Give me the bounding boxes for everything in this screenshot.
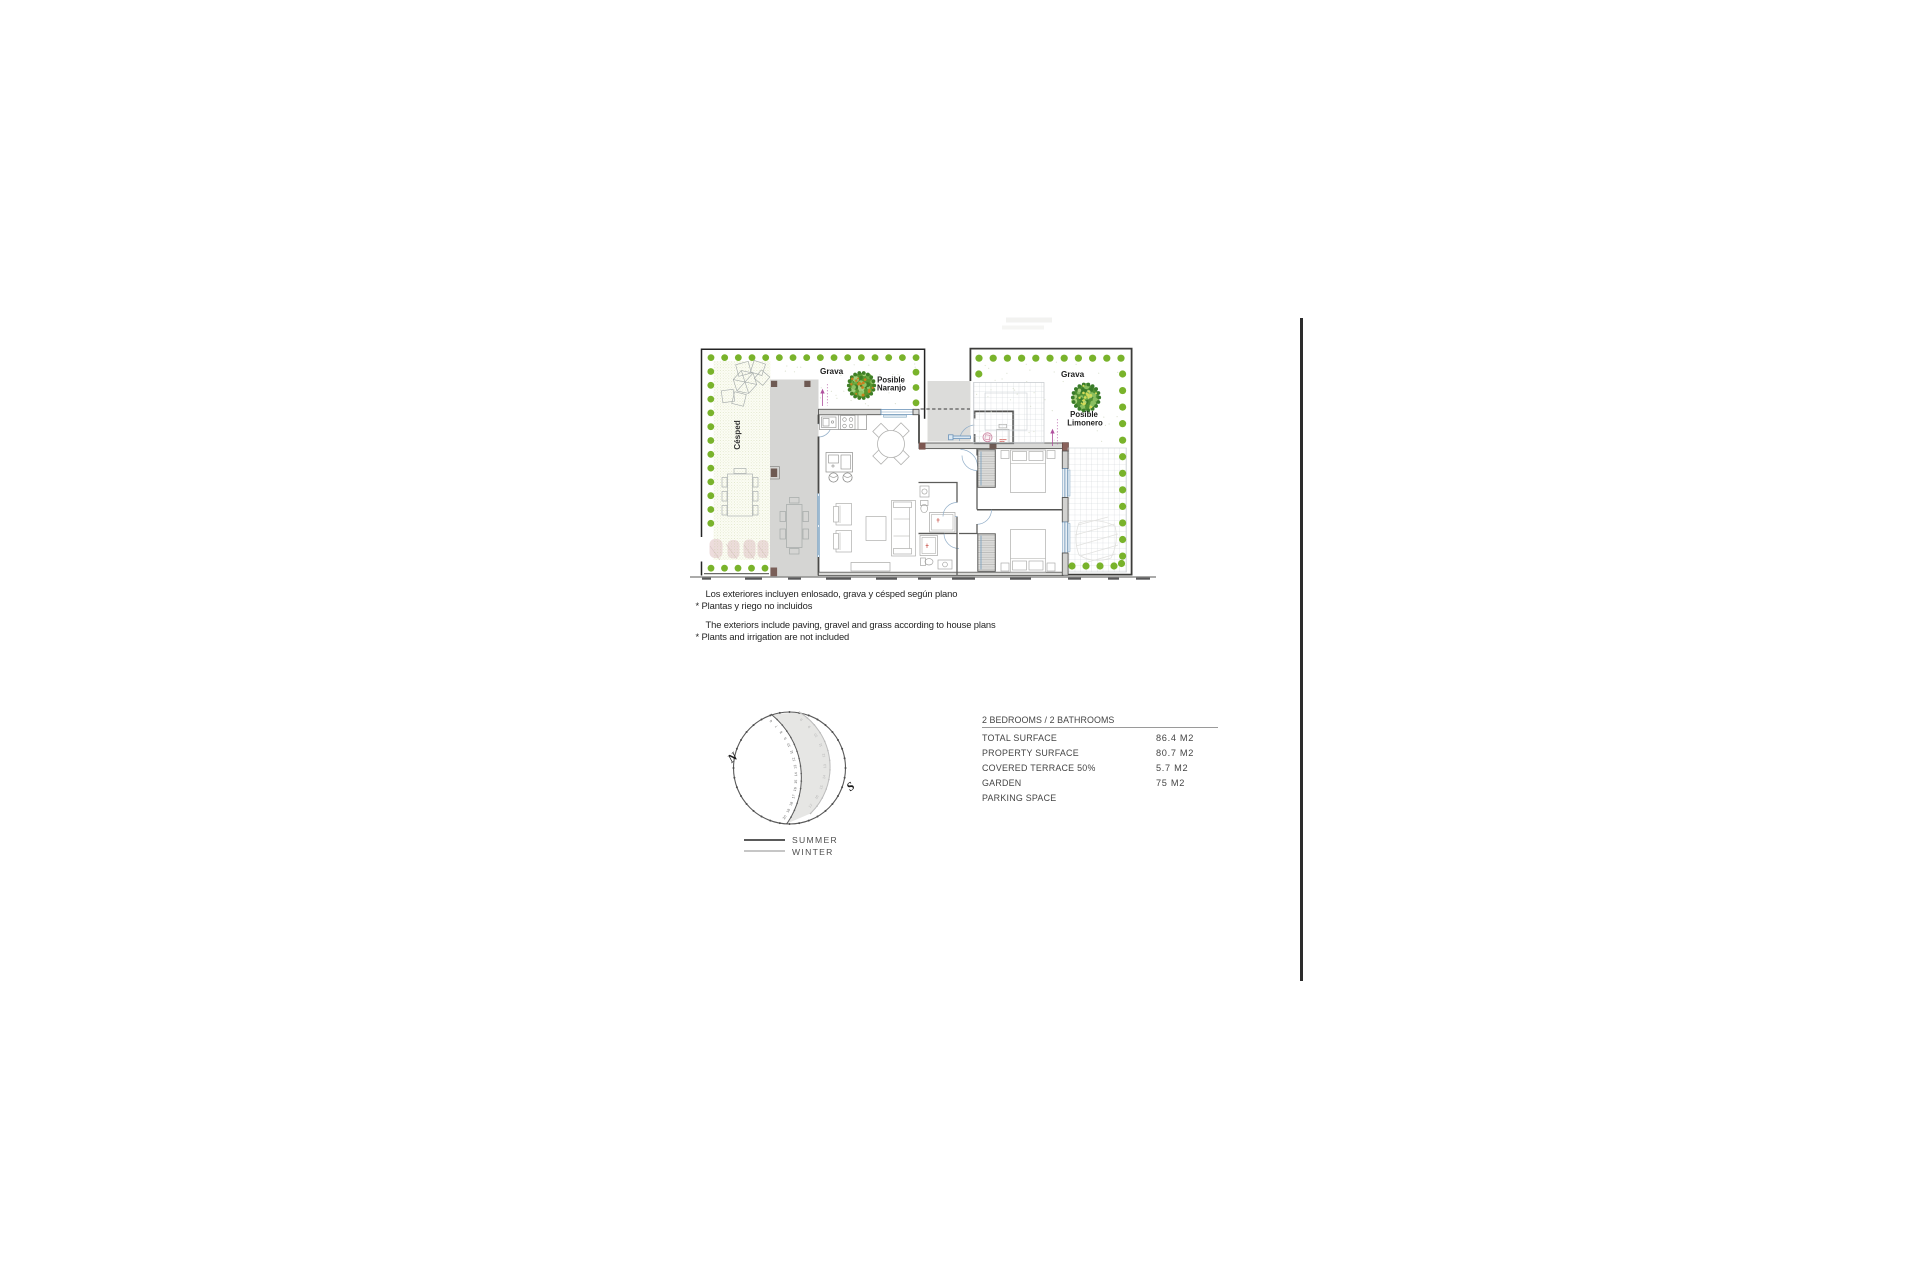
- svg-text:N: N: [724, 748, 741, 766]
- svg-text:Grava: Grava: [1061, 370, 1085, 379]
- svg-text:6: 6: [769, 719, 773, 723]
- svg-text:Césped: Césped: [733, 420, 742, 450]
- svg-text:13: 13: [793, 764, 798, 769]
- svg-text:Grava: Grava: [820, 367, 844, 376]
- svg-text:17: 17: [791, 794, 796, 799]
- svg-text:20: 20: [782, 815, 788, 821]
- svg-text:15: 15: [794, 780, 798, 784]
- svg-text:19: 19: [786, 808, 791, 813]
- svg-text:16: 16: [793, 787, 798, 792]
- svg-text:9: 9: [783, 737, 787, 741]
- svg-text:12: 12: [792, 757, 797, 762]
- svg-text:Naranjo: Naranjo: [877, 384, 906, 393]
- svg-text:7: 7: [774, 724, 778, 728]
- svg-text:Limonero: Limonero: [1067, 419, 1103, 428]
- svg-text:11: 11: [789, 750, 794, 755]
- svg-text:14: 14: [794, 772, 798, 776]
- svg-text:8: 8: [779, 730, 783, 734]
- svg-text:13: 13: [823, 764, 827, 768]
- svg-text:S: S: [844, 779, 858, 794]
- svg-text:14: 14: [822, 775, 827, 780]
- svg-text:12: 12: [822, 753, 827, 758]
- svg-text:18: 18: [789, 801, 794, 806]
- svg-text:10: 10: [786, 742, 791, 747]
